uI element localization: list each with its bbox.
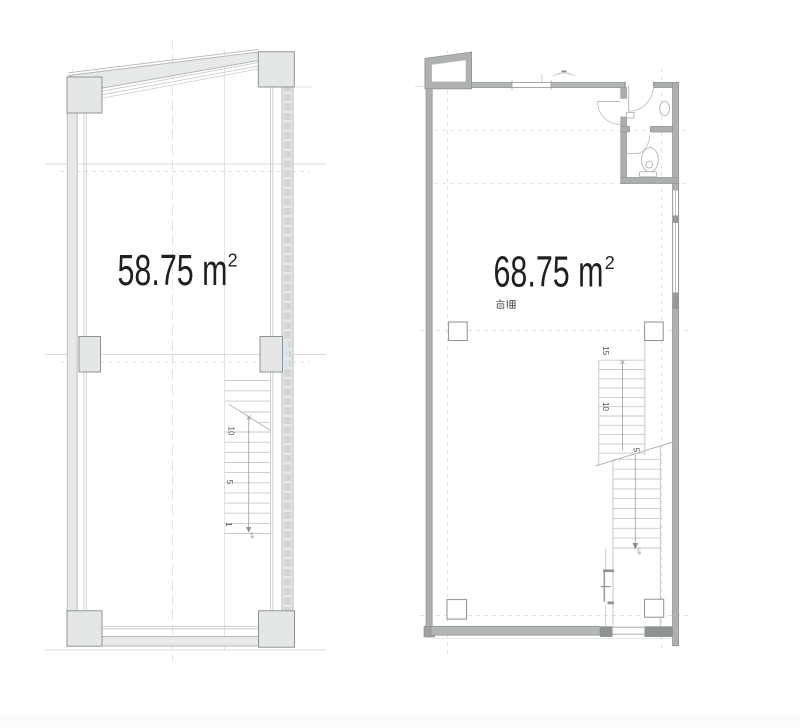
- svg-text:1: 1: [224, 522, 233, 527]
- svg-text:58.75 m: 58.75 m: [118, 247, 228, 295]
- svg-text:2: 2: [605, 253, 615, 273]
- svg-text:UP: UP: [637, 548, 642, 554]
- svg-text:68.75 m: 68.75 m: [494, 249, 604, 297]
- svg-text:15: 15: [601, 346, 610, 355]
- svg-text:5: 5: [225, 480, 234, 485]
- svg-text:UP: UP: [250, 532, 255, 538]
- svg-text:10: 10: [227, 427, 236, 436]
- svg-text:10: 10: [601, 402, 610, 411]
- svg-text:2: 2: [228, 251, 238, 271]
